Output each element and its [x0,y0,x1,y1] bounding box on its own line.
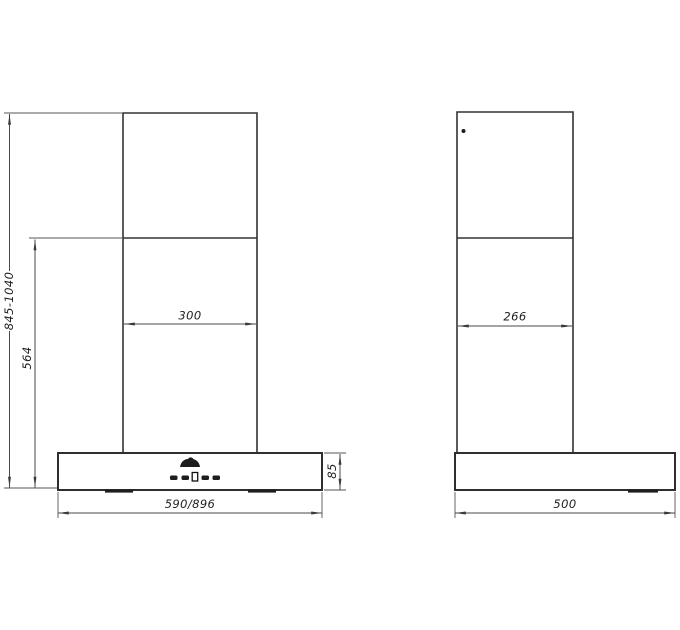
side-view [455,112,675,493]
dimension-label-chimney-width: 300 [178,309,201,323]
front-chimney-outline [123,113,257,453]
control-button-4 [213,476,221,481]
control-button-1 [170,476,178,481]
lamp-left [105,490,133,493]
control-display [192,473,198,482]
side-lamp [628,490,658,493]
dimension-label-body-width: 590/896 [165,497,216,511]
control-button-3 [202,476,210,481]
side-chimney-outline [457,112,573,453]
lamp-right [248,490,276,493]
dimension-label-mount-height: 564 [20,346,34,369]
dimension-label-body-depth: 500 [553,497,576,511]
hood-dimension-drawing: 845-1040 564 300 590/896 85 266 500 [0,0,680,630]
side-hood-body [455,453,675,490]
dimension-label-total-height: 845-1040 [2,272,16,331]
front-view [58,113,322,493]
dimension-label-body-height: 85 [325,463,339,478]
control-button-2 [182,476,190,481]
screw-icon [462,129,466,133]
dimension-label-chimney-depth: 266 [503,310,526,324]
drawing-canvas: 845-1040 564 300 590/896 85 266 500 [0,0,680,630]
